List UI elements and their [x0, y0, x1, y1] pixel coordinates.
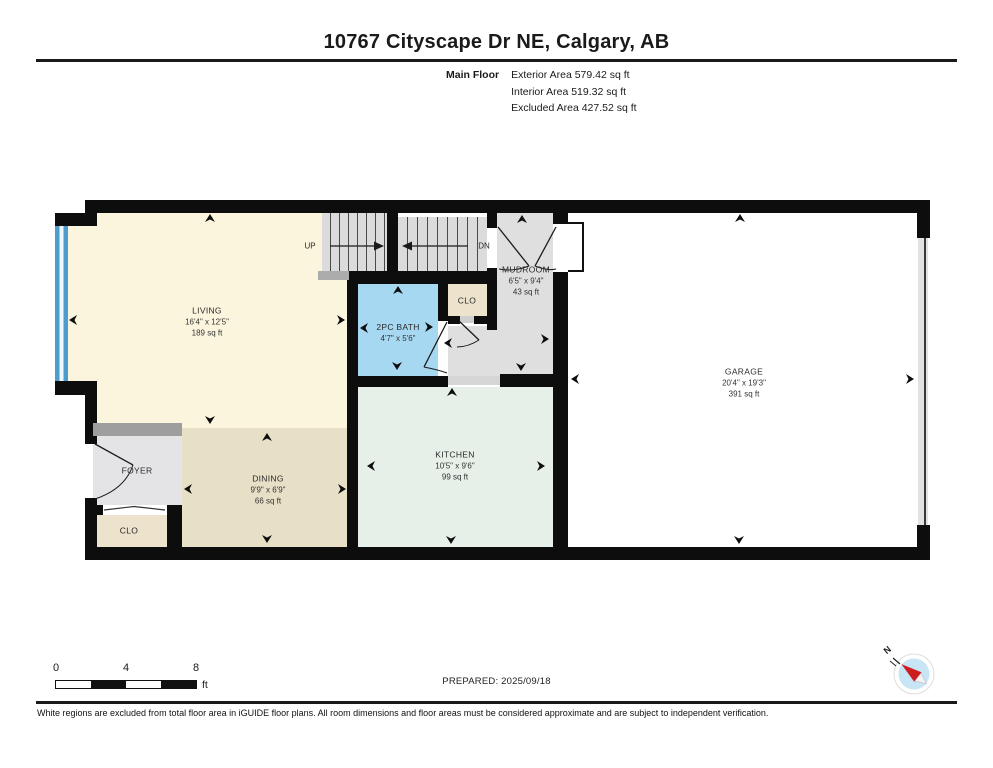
living-room-label: LIVING 16'4" x 12'5" 189 sq ft: [185, 306, 229, 339]
compass-icon: [890, 654, 934, 694]
garage-overhead-door: [918, 238, 928, 525]
wall: [448, 316, 460, 324]
foyer-closet-shelf: [93, 423, 182, 436]
hall-closet-label: CLO: [458, 296, 476, 307]
closet-door-threshold: [460, 316, 474, 323]
wall: [85, 200, 930, 213]
garage-label: GARAGE 20'4" x 19'3" 391 sq ft: [722, 367, 766, 400]
stairs-down-label: DN: [478, 242, 490, 251]
wall: [387, 200, 398, 276]
wall: [487, 268, 497, 330]
wall: [347, 271, 358, 548]
living-room-bay-floor: [68, 226, 97, 381]
wall: [347, 271, 488, 284]
disclaimer-text: White regions are excluded from total fl…: [37, 708, 768, 718]
garage-step-landing: [568, 222, 584, 272]
dining-room-label: DINING 9'9" x 6'9" 66 sq ft: [251, 474, 286, 507]
living-window: [55, 226, 68, 381]
kitchen-opening-threshold: [448, 376, 500, 385]
floor-summary: Main Floor Exterior Area 579.42 sq ft In…: [446, 67, 637, 117]
stairs-down: [398, 217, 487, 271]
stairs-up-label: UP: [304, 242, 315, 251]
header-divider: [36, 59, 957, 62]
scale-tick-4: 4: [123, 662, 129, 674]
interior-area: Interior Area 519.32 sq ft: [511, 84, 637, 101]
stairs-up: [322, 213, 387, 271]
wall: [553, 272, 568, 560]
foyer-closet-label: CLO: [120, 526, 138, 537]
floor-label: Main Floor: [446, 67, 499, 117]
excluded-area: Excluded Area 427.52 sq ft: [511, 100, 637, 117]
kitchen-label: KITCHEN 10'5" x 9'6" 99 sq ft: [435, 450, 474, 483]
mudroom-corridor-floor: [448, 326, 497, 376]
compass-north-label: N: [882, 644, 893, 656]
stairs-landing-edge: [318, 271, 349, 280]
scale-tick-8: 8: [193, 662, 199, 674]
wall: [93, 505, 103, 515]
exterior-area: Exterior Area 579.42 sq ft: [511, 67, 637, 84]
mudroom-label: MUDROOM 6'5" x 9'4" 43 sq ft: [502, 265, 550, 298]
wall: [55, 381, 97, 395]
bath-label: 2PC BATH 4'7" x 5'6": [376, 322, 419, 344]
area-summary: Exterior Area 579.42 sq ft Interior Area…: [511, 67, 637, 117]
garage-overhead-door-line: [924, 238, 926, 525]
wall: [917, 200, 930, 238]
wall: [85, 394, 97, 444]
wall: [85, 547, 930, 560]
wall: [500, 374, 553, 387]
scale-tick-0: 0: [53, 662, 59, 674]
prepared-date: PREPARED: 2025/09/18: [0, 676, 993, 687]
wall: [347, 376, 448, 387]
wall: [55, 213, 97, 226]
page-title: 10767 Cityscape Dr NE, Calgary, AB: [0, 31, 993, 54]
footer-divider: [36, 701, 957, 704]
wall: [553, 200, 568, 224]
floorplan-page: 10767 Cityscape Dr NE, Calgary, AB Main …: [0, 0, 993, 768]
wall: [487, 200, 497, 228]
wall: [167, 505, 182, 548]
foyer-closet-door: [104, 507, 165, 511]
foyer-label: FOYER: [122, 466, 153, 477]
wall: [438, 271, 448, 321]
